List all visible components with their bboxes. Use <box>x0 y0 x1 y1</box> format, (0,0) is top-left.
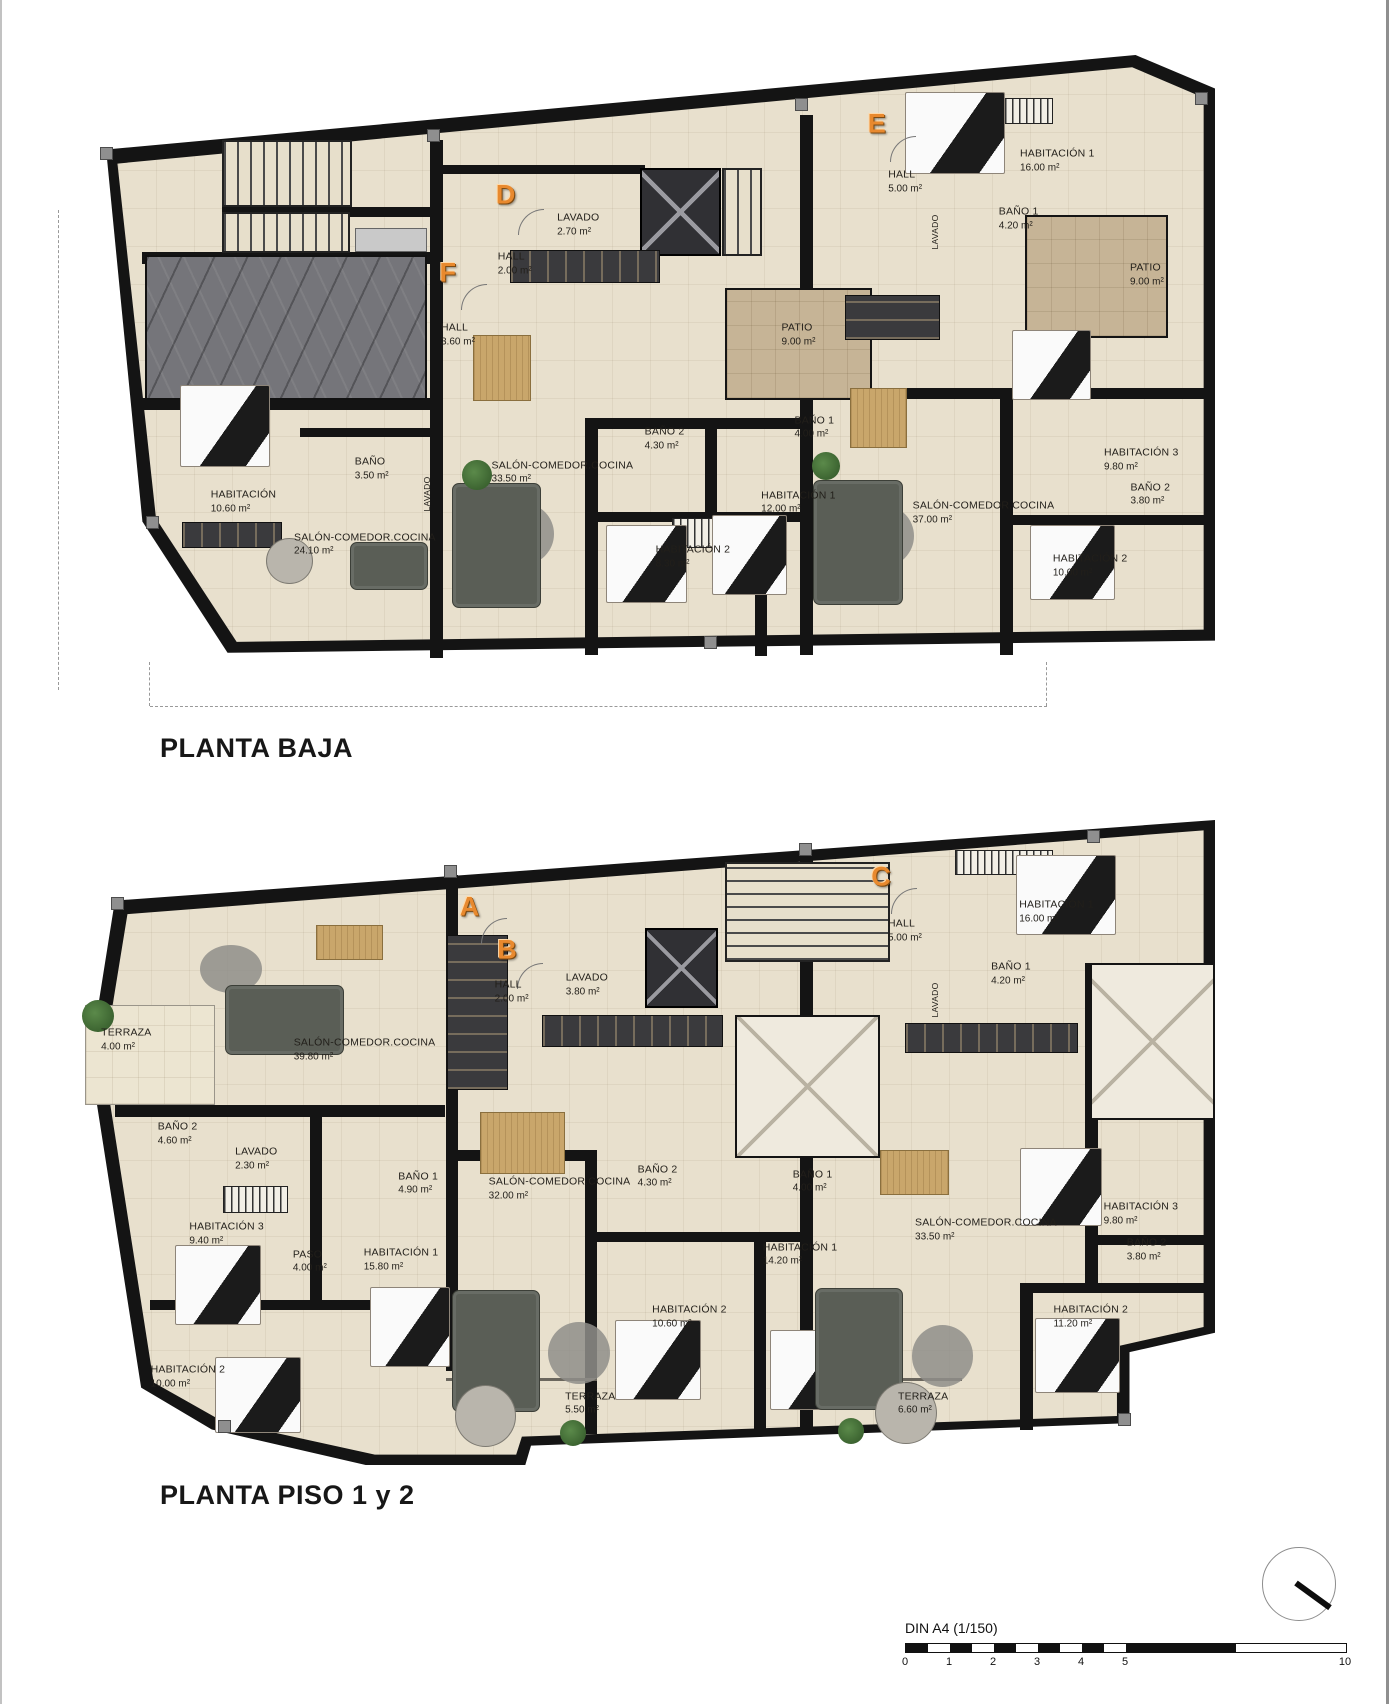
scale-segment <box>972 1644 994 1652</box>
scale-tick: 0 <box>902 1656 908 1668</box>
room-area: 4.00 m² <box>793 1182 833 1195</box>
room-label: HABITACIÓN10.60 m² <box>211 489 276 516</box>
property-line <box>150 706 1047 707</box>
kitchen-counter <box>182 522 282 548</box>
room-area: 39.80 m² <box>294 1051 436 1064</box>
wall <box>705 418 716 512</box>
room-area: 2.00 m² <box>495 993 529 1006</box>
rug <box>912 1325 974 1387</box>
pillar <box>704 636 717 649</box>
room-label: SALÓN-COMEDOR.COCINA24.10 m² <box>294 532 436 559</box>
void-skylight <box>1090 963 1215 1120</box>
room-name: HALL <box>495 979 529 993</box>
room-name: LAVADO <box>566 972 608 986</box>
room-name: BAÑO 2 <box>1130 481 1170 495</box>
room-label: LAVADO2.70 m² <box>557 212 599 239</box>
room-area: 9.40 m² <box>189 1234 264 1247</box>
room-area: 33.50 m² <box>492 473 634 486</box>
room-label: HABITACIÓN 39.40 m² <box>189 1221 264 1248</box>
room-area: 3.80 m² <box>566 985 608 998</box>
room-name: HABITACIÓN 1 <box>1019 899 1094 913</box>
pillar <box>444 865 457 878</box>
room-label: PATIO9.00 m² <box>1130 262 1164 289</box>
room-name: BAÑO 2 <box>638 1163 678 1177</box>
room-area: 14.20 m² <box>763 1255 838 1268</box>
terrace-table <box>455 1385 517 1447</box>
room-name: TERRAZA <box>898 1390 948 1404</box>
scale-segment <box>906 1644 928 1652</box>
room-label: BAÑO 24.30 m² <box>638 1163 678 1190</box>
room-area: 4.00 m² <box>293 1262 327 1275</box>
staircase <box>725 862 890 962</box>
pillar <box>427 129 440 142</box>
scale-segment <box>950 1644 972 1652</box>
room-name: BAÑO 1 <box>793 1169 833 1183</box>
staircase <box>222 212 350 253</box>
bed <box>1012 330 1091 400</box>
scale-segment <box>1104 1644 1126 1652</box>
room-name: LAVADO <box>235 1146 277 1160</box>
room-area: 4.30 m² <box>645 440 685 453</box>
unit-badge-a: A <box>460 892 480 923</box>
scale-label: DIN A4 (1/150) <box>905 1620 998 1636</box>
room-name: SALÓN-COMEDOR.COCINA <box>489 1176 631 1190</box>
dining-table <box>880 1150 950 1195</box>
unit-badge-d: D <box>496 180 516 211</box>
room-name: SALÓN-COMEDOR.COCINA <box>492 460 634 474</box>
room-name: HABITACIÓN 2 <box>1053 1304 1128 1318</box>
unit-badge-e: E <box>868 108 886 139</box>
page-border-left <box>0 0 2 1704</box>
void-skylight <box>735 1015 880 1158</box>
pillar <box>1087 830 1100 843</box>
wall <box>430 165 646 174</box>
room-label: TERRAZA4.00 m² <box>101 1027 151 1054</box>
room-name: HABITACIÓN 3 <box>1104 447 1179 461</box>
room-area: 4.20 m² <box>991 974 1031 987</box>
room-area: 9.80 m² <box>1104 460 1179 473</box>
elevator <box>640 168 722 256</box>
room-name: SALÓN-COMEDOR.COCINA <box>294 532 436 546</box>
scale-tick: 4 <box>1078 1656 1084 1668</box>
room-label-vertical: LAVADO <box>930 214 940 249</box>
staircase <box>222 140 353 207</box>
room-label: BAÑO 14.00 m² <box>794 414 834 441</box>
room-area: 16.00 m² <box>1020 161 1095 174</box>
room-label: HABITACIÓN 28.30 m² <box>656 544 731 571</box>
bed <box>175 1245 261 1325</box>
room-area: 8.30 m² <box>656 557 731 570</box>
room-label: BAÑO 24.60 m² <box>158 1121 198 1148</box>
room-label: HABITACIÓN 39.80 m² <box>1104 1201 1179 1228</box>
room-area: 9.00 m² <box>782 335 816 348</box>
room-area: 3.50 m² <box>355 470 389 483</box>
room-label: BAÑO 23.80 m² <box>1127 1237 1167 1264</box>
kitchen-counter <box>905 1023 1078 1053</box>
room-area: 3.80 m² <box>1127 1251 1167 1264</box>
room-name: HABITACIÓN 1 <box>763 1241 838 1255</box>
plan2-title: PLANTA PISO 1 y 2 <box>160 1480 415 1511</box>
scale-segment <box>1082 1644 1104 1652</box>
room-area: 24.10 m² <box>294 545 436 558</box>
room-label: HABITACIÓN 210.60 m² <box>652 1304 727 1331</box>
room-label: PATIO9.00 m² <box>782 322 816 349</box>
room-label: HALL5.00 m² <box>888 918 922 945</box>
dining-table <box>473 335 531 401</box>
wall <box>115 1105 446 1117</box>
room-label: LAVADO2.30 m² <box>235 1146 277 1173</box>
room-label: HALL5.00 m² <box>888 169 922 196</box>
room-label: TERRAZA6.60 m² <box>898 1390 948 1417</box>
room-label: HABITACIÓN 116.00 m² <box>1019 899 1094 926</box>
room-label: HABITACIÓN 211.20 m² <box>1053 1304 1128 1331</box>
room-area: 9.80 m² <box>1104 1214 1179 1227</box>
wall <box>585 418 597 655</box>
room-name: BAÑO 2 <box>158 1121 198 1135</box>
room-label: SALÓN-COMEDOR.COCINA39.80 m² <box>294 1037 436 1064</box>
dining-table <box>480 1112 566 1174</box>
wall <box>1020 1283 1033 1430</box>
room-name: TERRAZA <box>101 1027 151 1041</box>
kitchen-counter <box>542 1015 722 1047</box>
room-name: HALL <box>441 322 475 336</box>
room-area: 2.70 m² <box>557 226 599 239</box>
room-area: 2.30 m² <box>235 1160 277 1173</box>
room-area: 6.60 m² <box>898 1404 948 1417</box>
dining-table <box>316 925 383 960</box>
room-label: SALÓN-COMEDOR.COCINA37.00 m² <box>913 500 1055 527</box>
room-name: LAVADO <box>557 212 599 226</box>
room-label: HABITACIÓN 116.00 m² <box>1020 148 1095 175</box>
room-name: PATIO <box>1130 262 1164 276</box>
bed <box>180 385 270 467</box>
room-label: BAÑO 14.20 m² <box>991 961 1031 988</box>
room-area: 10.00 m² <box>151 1378 226 1391</box>
plant <box>838 1418 864 1444</box>
floor-plan-planta-piso: TERRAZA4.00 m²SALÓN-COMEDOR.COCINA39.80 … <box>75 820 1215 1465</box>
room-area: 9.00 m² <box>1130 276 1164 289</box>
room-name: HABITACIÓN 1 <box>761 489 836 503</box>
wardrobe <box>223 1186 288 1213</box>
room-label: HALL2.00 m² <box>495 979 529 1006</box>
scale-tick: 2 <box>990 1656 996 1668</box>
sofa <box>452 483 541 608</box>
pillar <box>1195 92 1208 105</box>
room-name: BAÑO 1 <box>999 206 1039 220</box>
scale-segment <box>1236 1644 1346 1652</box>
room-name: HABITACIÓN 2 <box>652 1304 727 1318</box>
room-label: LAVADO3.80 m² <box>566 972 608 999</box>
kitchen-counter <box>510 250 660 283</box>
room-area: 32.00 m² <box>489 1189 631 1202</box>
pillar <box>100 147 113 160</box>
room-name: HABITACIÓN 1 <box>1020 148 1095 162</box>
pillar <box>146 516 159 529</box>
kitchen-counter <box>845 295 940 340</box>
room-name: PASO <box>293 1248 327 1262</box>
wall <box>300 428 432 437</box>
bed <box>370 1287 450 1367</box>
room-label: HABITACIÓN 114.20 m² <box>763 1241 838 1268</box>
elevator <box>645 928 718 1008</box>
plant <box>560 1420 586 1446</box>
room-name: SALÓN-COMEDOR.COCINA <box>294 1037 436 1051</box>
plan1-title: PLANTA BAJA <box>160 733 353 764</box>
room-area: 10.60 m² <box>652 1318 727 1331</box>
room-label: BAÑO3.50 m² <box>355 456 389 483</box>
wall <box>430 140 444 659</box>
room-name: PATIO <box>782 322 816 336</box>
bed <box>905 92 1005 174</box>
room-area: 3.80 m² <box>1130 495 1170 508</box>
pillar <box>1118 1413 1131 1426</box>
scale-segment <box>1038 1644 1060 1652</box>
room-label: BAÑO 24.30 m² <box>645 426 685 453</box>
scale-segment <box>1016 1644 1038 1652</box>
scale-tick: 10 <box>1339 1656 1351 1668</box>
room-area: 4.00 m² <box>794 428 834 441</box>
pillar <box>218 1420 231 1433</box>
plant <box>462 460 492 490</box>
room-name: HABITACIÓN <box>211 489 276 503</box>
floor-plan-sheet: HALL3.60 m²LAVADO2.70 m²HALL2.00 m²HALL5… <box>0 0 1389 1704</box>
room-label: TERRAZA5.50 m² <box>565 1390 615 1417</box>
scale-tick: 3 <box>1034 1656 1040 1668</box>
room-area: 2.00 m² <box>498 265 532 278</box>
room-area: 4.60 m² <box>158 1134 198 1147</box>
room-label: SALÓN-COMEDOR.COCINA33.50 m² <box>915 1217 1057 1244</box>
room-label: BAÑO 14.20 m² <box>999 206 1039 233</box>
room-label: BAÑO 14.00 m² <box>793 1169 833 1196</box>
room-area: 4.00 m² <box>101 1040 151 1053</box>
room-name: BAÑO 2 <box>645 426 685 440</box>
room-name: HABITACIÓN 2 <box>1053 553 1128 567</box>
pillar <box>111 897 124 910</box>
room-name: HABITACIÓN 3 <box>1104 1201 1179 1215</box>
room-area: 15.80 m² <box>364 1260 439 1273</box>
room-label: HABITACIÓN 39.80 m² <box>1104 447 1179 474</box>
room-label: SALÓN-COMEDOR.COCINA32.00 m² <box>489 1176 631 1203</box>
room-label: SALÓN-COMEDOR.COCINA33.50 m² <box>492 460 634 487</box>
room-area: 4.90 m² <box>398 1184 438 1197</box>
room-label: BAÑO 23.80 m² <box>1130 481 1170 508</box>
floor-plan-planta-baja: HALL3.60 m²LAVADO2.70 m²HALL2.00 m²HALL5… <box>80 55 1215 665</box>
room-name: BAÑO <box>355 456 389 470</box>
room-area: 10.00 m² <box>1053 566 1128 579</box>
room-label: HABITACIÓN 112.00 m² <box>761 489 836 516</box>
room-area: 16.00 m² <box>1019 913 1094 926</box>
unit-badge-b: B <box>497 935 517 966</box>
landing <box>355 228 428 252</box>
room-area: 5.00 m² <box>888 931 922 944</box>
room-area: 3.60 m² <box>441 335 475 348</box>
property-line <box>149 662 150 706</box>
scale-segment <box>1060 1644 1082 1652</box>
rug <box>548 1322 610 1384</box>
stair-core <box>722 168 762 256</box>
room-label: HALL2.00 m² <box>498 251 532 278</box>
pillar <box>795 98 808 111</box>
room-name: BAÑO 1 <box>794 414 834 428</box>
room-area: 11.20 m² <box>1053 1318 1128 1331</box>
room-area: 5.50 m² <box>565 1404 615 1417</box>
room-name: HALL <box>498 251 532 265</box>
room-name: HALL <box>888 169 922 183</box>
unit-badge-c: C <box>871 861 891 892</box>
dining-table <box>850 388 908 448</box>
room-label-vertical: LAVADO <box>422 477 432 512</box>
room-name: BAÑO 1 <box>991 961 1031 975</box>
scale-segment <box>928 1644 950 1652</box>
scale-tick: 5 <box>1122 1656 1128 1668</box>
room-area: 10.60 m² <box>211 502 276 515</box>
room-area: 4.20 m² <box>999 219 1039 232</box>
room-label: HALL3.60 m² <box>441 322 475 349</box>
wall <box>1020 1283 1215 1293</box>
room-name: SALÓN-COMEDOR.COCINA <box>915 1217 1057 1231</box>
scale-bar <box>905 1643 1347 1653</box>
room-name: HALL <box>888 918 922 932</box>
room-label: HABITACIÓN 210.00 m² <box>1053 553 1128 580</box>
pillar <box>799 843 812 856</box>
bed <box>1020 1148 1102 1226</box>
garage-ramp <box>145 255 428 400</box>
scale-segment <box>994 1644 1016 1652</box>
property-line <box>1046 662 1047 706</box>
room-area: 12.00 m² <box>761 503 836 516</box>
wall <box>585 418 810 429</box>
room-name: HABITACIÓN 2 <box>151 1364 226 1378</box>
property-line <box>58 210 59 690</box>
room-label: PASO4.00 m² <box>293 1248 327 1275</box>
room-label: HABITACIÓN 210.00 m² <box>151 1364 226 1391</box>
room-area: 5.00 m² <box>888 182 922 195</box>
room-label: BAÑO 14.90 m² <box>398 1170 438 1197</box>
room-name: HABITACIÓN 2 <box>656 544 731 558</box>
room-name: HABITACIÓN 1 <box>364 1247 439 1261</box>
room-name: TERRAZA <box>565 1390 615 1404</box>
room-label-vertical: LAVADO <box>930 982 940 1017</box>
scale-tick: 1 <box>946 1656 952 1668</box>
room-name: BAÑO 2 <box>1127 1237 1167 1251</box>
room-name: BAÑO 1 <box>398 1170 438 1184</box>
room-area: 33.50 m² <box>915 1231 1057 1244</box>
scale-segment <box>1126 1644 1236 1652</box>
room-area: 37.00 m² <box>913 513 1055 526</box>
room-name: HABITACIÓN 3 <box>189 1221 264 1235</box>
bed <box>615 1320 701 1400</box>
room-area: 4.30 m² <box>638 1177 678 1190</box>
room-label: HABITACIÓN 115.80 m² <box>364 1247 439 1274</box>
room-name: SALÓN-COMEDOR.COCINA <box>913 500 1055 514</box>
unit-badge-f: F <box>439 257 456 288</box>
